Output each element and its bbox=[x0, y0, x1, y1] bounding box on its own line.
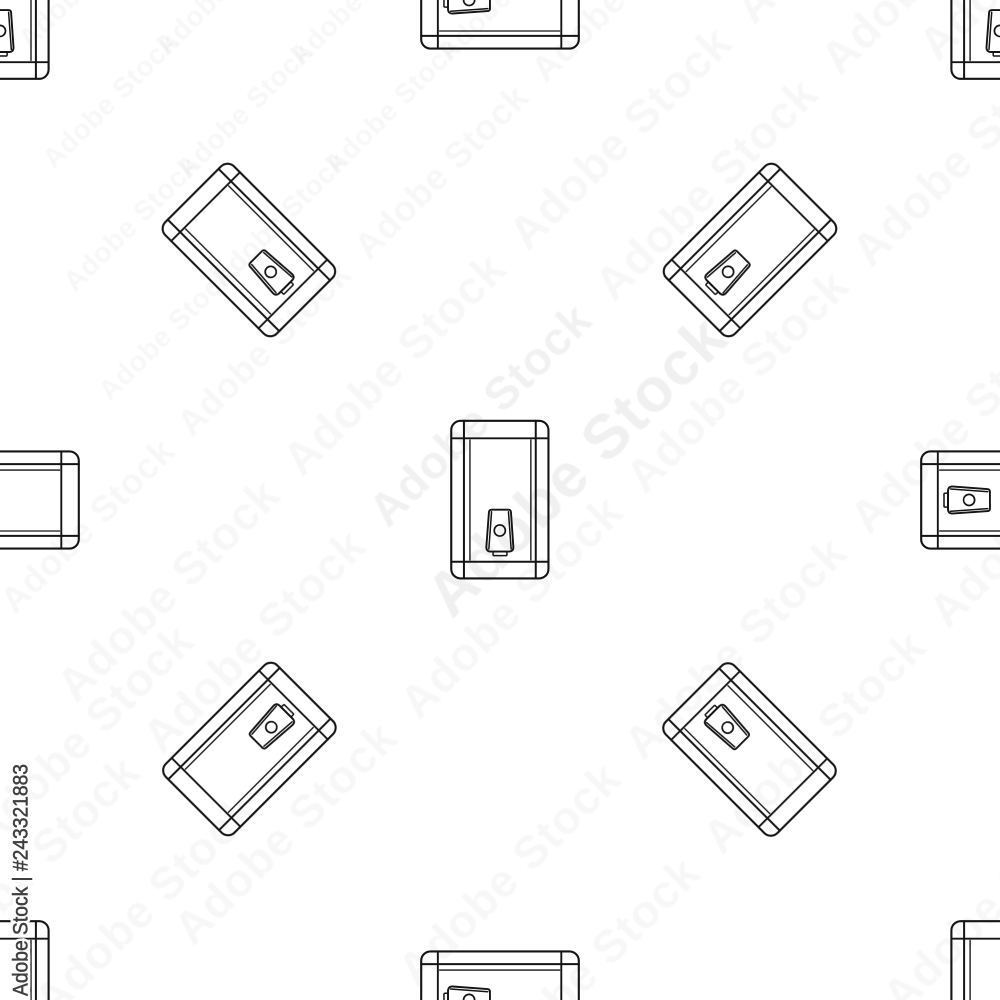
svg-text:Adobe Stock | #243321883: Adobe Stock | #243321883 bbox=[10, 764, 33, 996]
